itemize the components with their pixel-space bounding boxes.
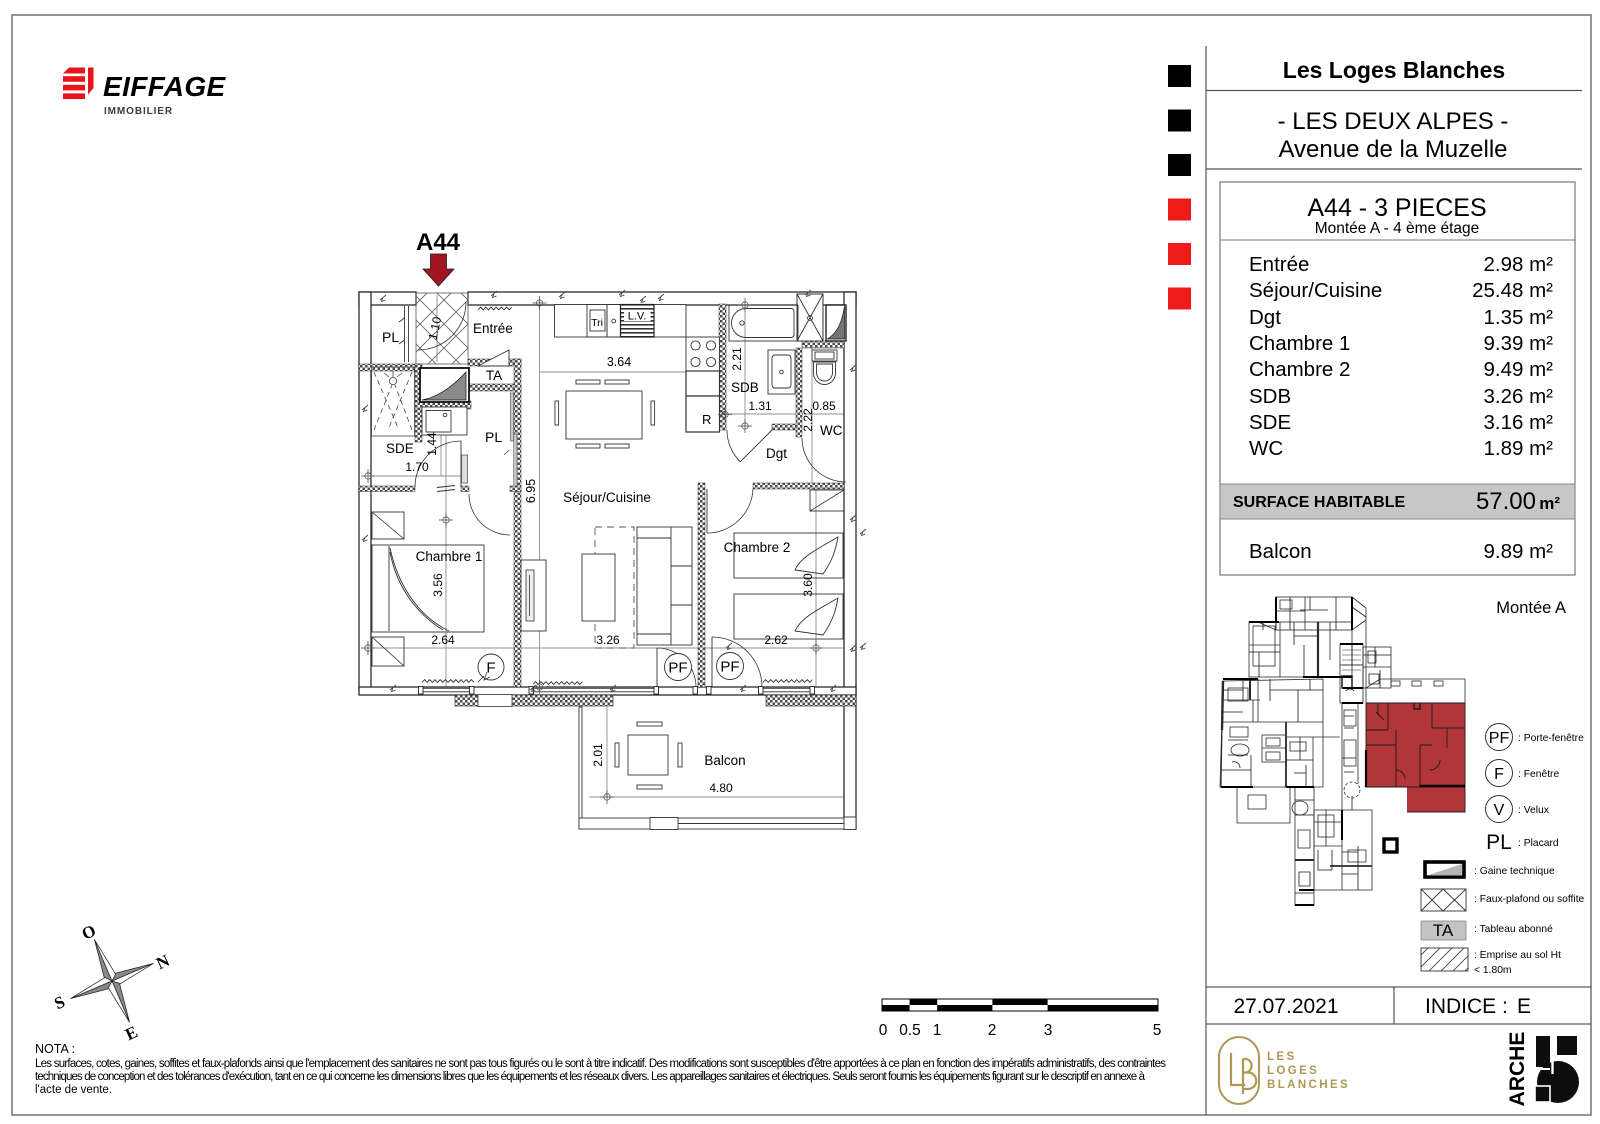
svg-text:A44: A44 [416, 229, 461, 256]
svg-text:E: E [122, 1022, 140, 1044]
svg-text:9.39 m²: 9.39 m² [1484, 332, 1554, 355]
svg-text:2.62: 2.62 [764, 633, 788, 647]
svg-text:SDB: SDB [1249, 385, 1291, 408]
svg-text:57.00: 57.00 [1476, 488, 1536, 515]
svg-text:1.89 m²: 1.89 m² [1484, 437, 1554, 460]
svg-text:Montée A - 4 ème étage: Montée A - 4 ème étage [1315, 220, 1480, 237]
svg-text:N: N [153, 951, 173, 974]
svg-text:E: E [1517, 995, 1531, 1018]
svg-text:Balcon: Balcon [1249, 540, 1312, 563]
svg-text:Balcon: Balcon [704, 753, 745, 768]
svg-text:5: 5 [1153, 1022, 1162, 1039]
svg-text:PL: PL [382, 329, 399, 345]
svg-text:1: 1 [933, 1022, 942, 1039]
svg-text:3.16 m²: 3.16 m² [1484, 411, 1554, 434]
svg-text:3.26 m²: 3.26 m² [1484, 385, 1554, 408]
svg-text:0.5: 0.5 [899, 1022, 921, 1039]
svg-text:2.01: 2.01 [591, 743, 605, 767]
svg-text:F: F [1494, 766, 1504, 783]
svg-text:PL: PL [485, 429, 502, 445]
svg-text:L.V.: L.V. [628, 311, 647, 323]
svg-text:PL: PL [1486, 831, 1512, 854]
svg-text:PF: PF [1489, 730, 1510, 747]
svg-text:1.44: 1.44 [425, 432, 439, 456]
svg-text:SDB: SDB [731, 380, 759, 395]
svg-text:Séjour/Cuisine: Séjour/Cuisine [563, 490, 651, 505]
svg-text:INDICE :: INDICE : [1425, 995, 1508, 1018]
svg-text:SDE: SDE [1249, 411, 1291, 434]
svg-text:Tri: Tri [591, 317, 603, 329]
svg-text:25.48 m²: 25.48 m² [1472, 279, 1553, 302]
svg-text:Les surfaces, cotes, gaines, s: Les surfaces, cotes, gaines, soffites et… [35, 1058, 1166, 1070]
svg-text:Chambre 1: Chambre 1 [416, 549, 483, 564]
svg-text:: Tableau abonné: : Tableau abonné [1474, 924, 1553, 935]
svg-text:l'acte de vente.: l'acte de vente. [35, 1084, 112, 1096]
svg-text:2.64: 2.64 [431, 633, 455, 647]
svg-text:: Fenêtre: : Fenêtre [1518, 769, 1559, 780]
svg-text:TA: TA [1433, 921, 1454, 940]
svg-text:Avenue de la Muzelle: Avenue de la Muzelle [1278, 136, 1507, 163]
svg-text:PF: PF [668, 660, 687, 677]
svg-text:4.80: 4.80 [709, 781, 733, 795]
svg-text:LOGES: LOGES [1267, 1065, 1319, 1077]
svg-text:ARCHE: ARCHE [1506, 1032, 1529, 1107]
svg-text:: Porte-fenêtre: : Porte-fenêtre [1518, 733, 1584, 744]
svg-text:1.35 m²: 1.35 m² [1484, 306, 1554, 329]
svg-text:V: V [1494, 802, 1505, 819]
svg-text:WC: WC [820, 423, 843, 438]
svg-text:: Velux: : Velux [1518, 805, 1550, 816]
svg-text:2: 2 [988, 1022, 997, 1039]
svg-text:Dgt: Dgt [766, 446, 787, 461]
svg-text:27.07.2021: 27.07.2021 [1233, 995, 1338, 1018]
svg-text:1.70: 1.70 [405, 460, 429, 474]
svg-text:Chambre 1: Chambre 1 [1249, 332, 1350, 355]
svg-text:Montée A: Montée A [1496, 599, 1566, 617]
svg-text:: Placard: : Placard [1518, 838, 1559, 849]
svg-text:SURFACE HABITABLE: SURFACE HABITABLE [1233, 494, 1405, 511]
svg-text:0: 0 [879, 1022, 888, 1039]
svg-text:9.49 m²: 9.49 m² [1484, 358, 1554, 381]
svg-text:: Faux-plafond ou soffite: : Faux-plafond ou soffite [1474, 894, 1585, 905]
svg-text:techniques de conception et de: techniques de conception et des toléranc… [35, 1071, 1146, 1083]
svg-text:: Emprise au sol Ht: : Emprise au sol Ht [1474, 950, 1561, 961]
svg-text:EIFFAGE: EIFFAGE [103, 71, 227, 102]
svg-text:3.60: 3.60 [801, 573, 815, 597]
svg-text:F: F [486, 660, 495, 677]
svg-text:3.64: 3.64 [607, 355, 631, 369]
svg-text:LES: LES [1267, 1051, 1297, 1063]
svg-text:A44 - 3 PIECES: A44 - 3 PIECES [1307, 194, 1486, 222]
svg-text:2.21: 2.21 [730, 347, 744, 371]
svg-text:R: R [702, 412, 711, 427]
svg-text:1.31: 1.31 [748, 399, 772, 413]
svg-text:- LES DEUX ALPES -: - LES DEUX ALPES - [1278, 108, 1509, 135]
svg-text:3: 3 [1044, 1022, 1053, 1039]
svg-text:TA: TA [486, 368, 502, 383]
svg-text:6.95: 6.95 [524, 479, 538, 503]
svg-text:2.98 m²: 2.98 m² [1484, 253, 1554, 276]
svg-text:3.26: 3.26 [596, 633, 620, 647]
svg-text:BLANCHES: BLANCHES [1267, 1079, 1350, 1091]
svg-text:NOTA :: NOTA : [35, 1042, 75, 1056]
svg-text:Séjour/Cuisine: Séjour/Cuisine [1249, 279, 1382, 302]
svg-text:m²: m² [1539, 494, 1560, 513]
svg-text:Entrée: Entrée [473, 321, 513, 336]
svg-text:WC: WC [1249, 437, 1283, 460]
svg-text:< 1.80m: < 1.80m [1474, 965, 1512, 976]
svg-text:2.22: 2.22 [801, 408, 815, 432]
svg-text:Chambre 2: Chambre 2 [1249, 358, 1350, 381]
svg-text:3.56: 3.56 [431, 573, 445, 597]
svg-text:Entrée: Entrée [1249, 253, 1309, 276]
svg-text:Dgt: Dgt [1249, 306, 1281, 329]
svg-text:Chambre 2: Chambre 2 [724, 540, 791, 555]
svg-text:SDE: SDE [386, 441, 414, 456]
svg-text:O: O [79, 921, 99, 944]
svg-text:PF: PF [720, 659, 739, 676]
svg-text:9.89 m²: 9.89 m² [1484, 540, 1554, 563]
svg-text:: Gaine technique: : Gaine technique [1474, 866, 1555, 877]
svg-text:S: S [51, 992, 68, 1013]
svg-text:Les Loges Blanches: Les Loges Blanches [1283, 57, 1505, 83]
svg-text:IMMOBILIER: IMMOBILIER [104, 106, 173, 117]
svg-text:0.85: 0.85 [812, 399, 836, 413]
